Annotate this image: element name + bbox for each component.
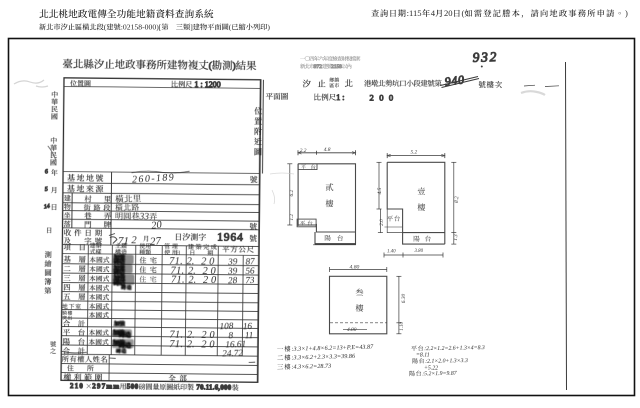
svg-text:2158: 2158 [331, 64, 342, 70]
svg-text:2: 2 [131, 235, 137, 246]
svg-text:2.2: 2.2 [300, 148, 307, 154]
svg-text:): ) [625, 8, 628, 18]
svg-text:70.11.6,000: 70.11.6,000 [196, 384, 231, 392]
svg-text:3.80: 3.80 [415, 249, 424, 254]
svg-text:297mm: 297mm [92, 382, 120, 390]
svg-text:2 0: 2 0 [203, 275, 216, 286]
svg-text:1 :: 1 : [336, 93, 344, 102]
svg-text:(: ( [461, 8, 464, 18]
svg-text:2 0: 2 0 [201, 339, 214, 350]
svg-text:4.5: 4.5 [377, 187, 383, 194]
svg-text:1.10: 1.10 [400, 321, 405, 330]
svg-text:(: ( [229, 22, 232, 31]
svg-text:4.80: 4.80 [347, 327, 357, 333]
svg-text:24.72: 24.72 [222, 348, 243, 359]
svg-text:28: 28 [228, 275, 238, 285]
svg-text:5.2: 5.2 [411, 150, 418, 156]
svg-text:972: 972 [314, 64, 322, 70]
svg-text::4.3×6.2=28.73: :4.3×6.2=28.73 [291, 363, 331, 371]
svg-text:210: 210 [70, 382, 84, 390]
svg-text::2.1×2.0+1.3×3.3: :2.1×2.0+1.3×3.3 [425, 358, 468, 365]
svg-text:(: ( [209, 61, 212, 71]
svg-text:4.8: 4.8 [324, 147, 331, 153]
svg-text:6.30: 6.30 [401, 293, 407, 303]
svg-text:1.40: 1.40 [387, 249, 396, 254]
svg-text:2.: 2. [188, 275, 196, 286]
svg-text:1.3: 1.3 [454, 234, 459, 241]
svg-text:): ) [233, 61, 236, 71]
svg-text:4: 4 [431, 8, 436, 18]
svg-text:20: 20 [444, 8, 453, 18]
svg-text:=8.11: =8.11 [416, 353, 430, 359]
svg-text:8.2: 8.2 [454, 196, 460, 203]
svg-text::5.2×1.9=9.87: :5.2×1.9=9.87 [422, 371, 458, 378]
svg-text:932: 932 [472, 49, 498, 65]
svg-text::02158-000)[: :02158-000)[ [121, 22, 162, 31]
svg-text:14: 14 [43, 203, 50, 211]
svg-text:73: 73 [245, 275, 255, 285]
svg-text:2.0: 2.0 [379, 219, 385, 226]
svg-text:2.: 2. [187, 339, 195, 350]
svg-text:]: ] [190, 22, 193, 31]
svg-text::115: :115 [407, 8, 422, 18]
svg-text:): ) [267, 22, 270, 31]
svg-text:71.: 71. [169, 339, 183, 350]
svg-text:1.2: 1.2 [289, 214, 295, 221]
svg-text::2.2×1.2=2.6+1.3×4=8.3: :2.2×1.2=2.6+1.3×4=8.3 [424, 344, 485, 352]
svg-text:33: 33 [138, 212, 149, 222]
svg-text:500: 500 [127, 383, 139, 391]
svg-text:71.: 71. [171, 275, 185, 286]
svg-text:11: 11 [245, 330, 254, 340]
svg-text:1964: 1964 [217, 232, 244, 244]
svg-text:.: . [481, 60, 483, 69]
svg-text:200: 200 [370, 93, 399, 103]
svg-text:27: 27 [150, 235, 162, 248]
svg-text:1 : 1200: 1 : 1200 [194, 80, 220, 89]
svg-text:4.80: 4.80 [350, 265, 360, 271]
svg-text:6.2: 6.2 [289, 189, 295, 196]
svg-text:(: ( [104, 22, 107, 31]
svg-text:71: 71 [118, 235, 129, 247]
